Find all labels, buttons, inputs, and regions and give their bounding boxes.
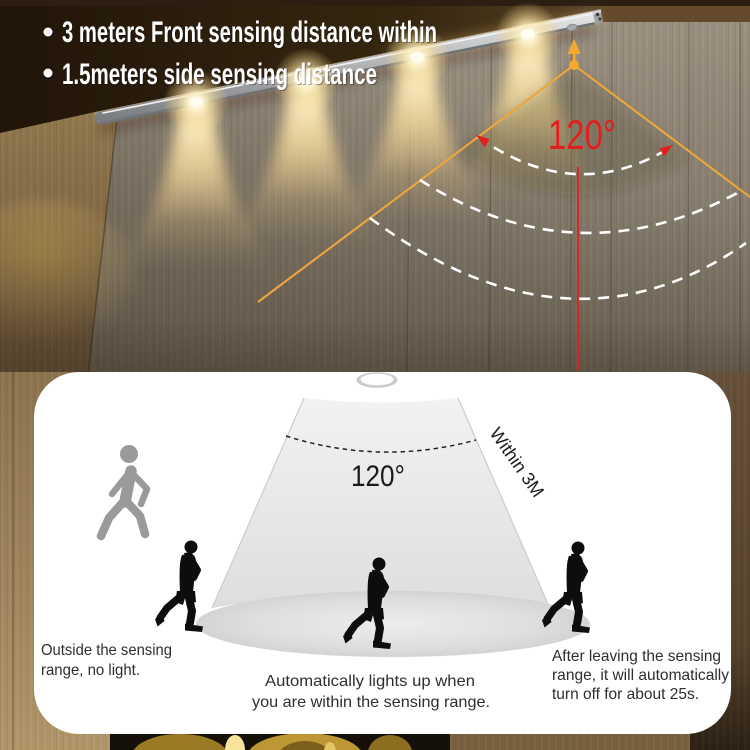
svg-text:120°: 120°	[351, 460, 405, 493]
svg-text:1.5meters side sensing distanc: 1.5meters side sensing distance	[62, 58, 377, 91]
svg-text:After leaving the sensing: After leaving the sensing	[552, 648, 721, 665]
svg-text:120°: 120°	[548, 111, 616, 158]
svg-text:turn off for about 25s.: turn off for about 25s.	[552, 686, 699, 703]
svg-text:Automatically lights up when: Automatically lights up when	[265, 673, 475, 690]
svg-text:you are within the sensing ran: you are within the sensing range.	[252, 694, 490, 711]
svg-text:range, it will automatically: range, it will automatically	[552, 667, 729, 684]
svg-text:range, no light.: range, no light.	[41, 662, 140, 679]
svg-text:Outside the sensing: Outside the sensing	[41, 642, 172, 659]
svg-text:3 meters Front sensing distanc: 3 meters Front sensing distance within	[62, 16, 437, 49]
